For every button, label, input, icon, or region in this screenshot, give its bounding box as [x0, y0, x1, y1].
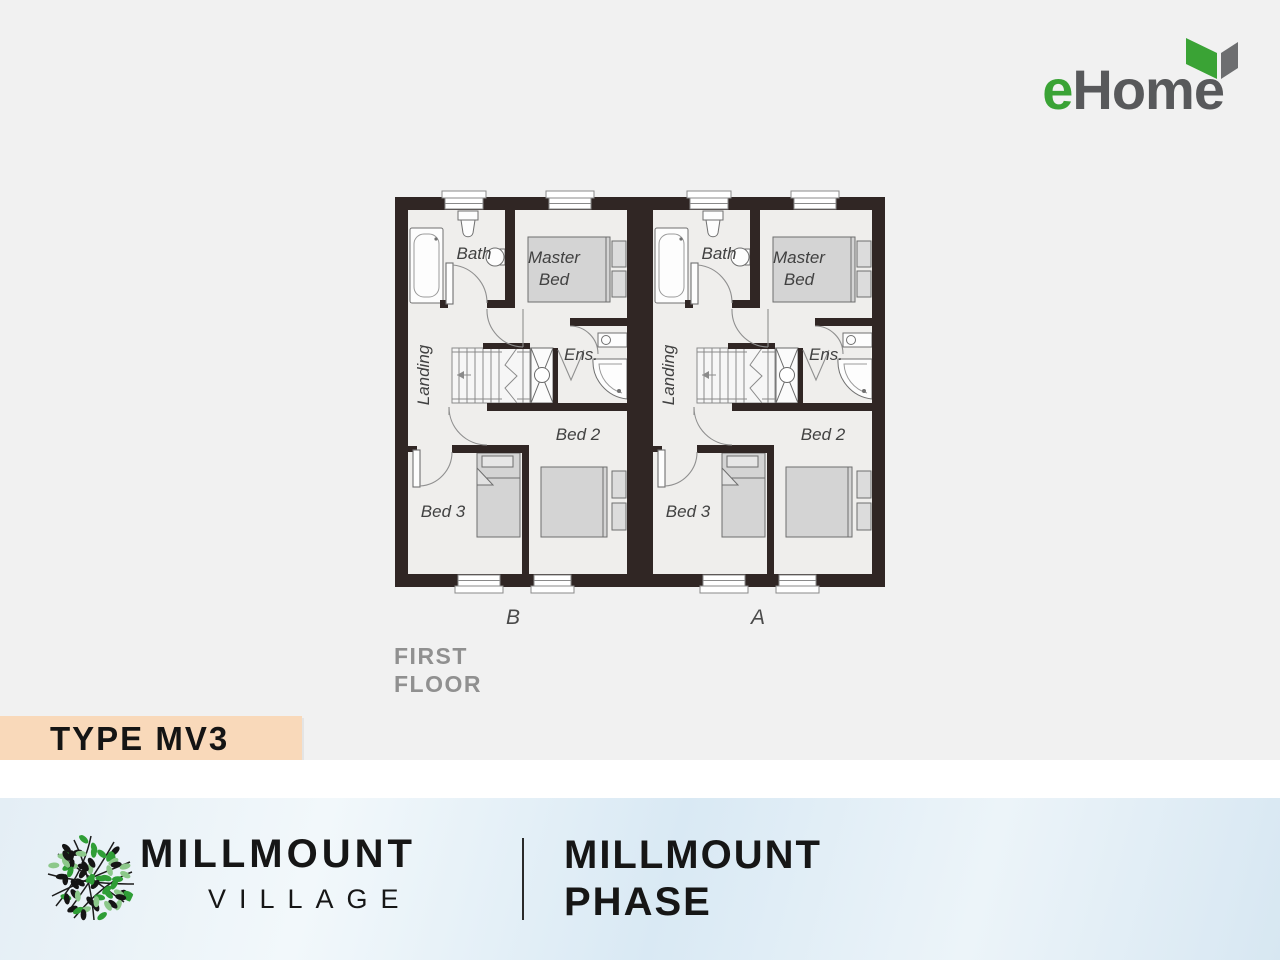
unit-b: Bath Master Bed Ens. Bed 2 Bed 3 Landing	[395, 191, 640, 593]
type-ribbon: TYPE MV3	[0, 716, 302, 762]
floor-caption: FIRST FLOOR	[394, 642, 482, 698]
floor-caption-line2: FLOOR	[394, 670, 482, 698]
room-label-master-1: Master	[528, 248, 581, 267]
unit-a: Bath Master Bed Ens. Bed 2 Bed 3 Landing	[640, 191, 885, 593]
room-label-bath: Bath	[457, 244, 492, 263]
white-band	[0, 760, 1280, 798]
phase-line2: PHASE	[564, 879, 822, 926]
room-label-landing: Landing	[659, 344, 678, 405]
room-label-bath: Bath	[702, 244, 737, 263]
tree-leaves	[48, 833, 135, 921]
room-label-master-1: Master	[773, 248, 826, 267]
floor-caption-line1: FIRST	[394, 642, 482, 670]
ehome-book-icon	[1186, 36, 1240, 80]
room-label-master-2: Bed	[539, 270, 570, 289]
room-label-landing: Landing	[414, 344, 433, 405]
millmount-tree-logo	[44, 830, 138, 928]
room-label-bed3: Bed 3	[666, 502, 711, 521]
brand-name: MILLMOUNT	[140, 834, 416, 874]
page: eHome	[0, 0, 1280, 960]
floor-plan: Bath Master Bed Ens. Bed 2 Bed 3 Landing…	[380, 180, 920, 660]
room-label-bed2: Bed 2	[556, 425, 601, 444]
room-label-master-2: Bed	[784, 270, 815, 289]
brand-subtitle: VILLAGE	[208, 886, 412, 913]
room-label-ens: Ens.	[809, 345, 843, 364]
footer: MILLMOUNT VILLAGE MILLMOUNT PHASE	[0, 798, 1280, 960]
unit-a-letter: A	[749, 606, 765, 629]
phase-line1: MILLMOUNT	[564, 832, 822, 879]
phase-block: MILLMOUNT PHASE	[564, 832, 822, 926]
room-label-bed3: Bed 3	[421, 502, 466, 521]
type-ribbon-label: TYPE MV3	[50, 720, 229, 758]
room-label-bed2: Bed 2	[801, 425, 846, 444]
ehome-logo-e: e	[1042, 58, 1072, 121]
unit-b-letter: B	[506, 606, 520, 629]
room-label-ens: Ens.	[564, 345, 598, 364]
footer-divider	[522, 838, 524, 920]
